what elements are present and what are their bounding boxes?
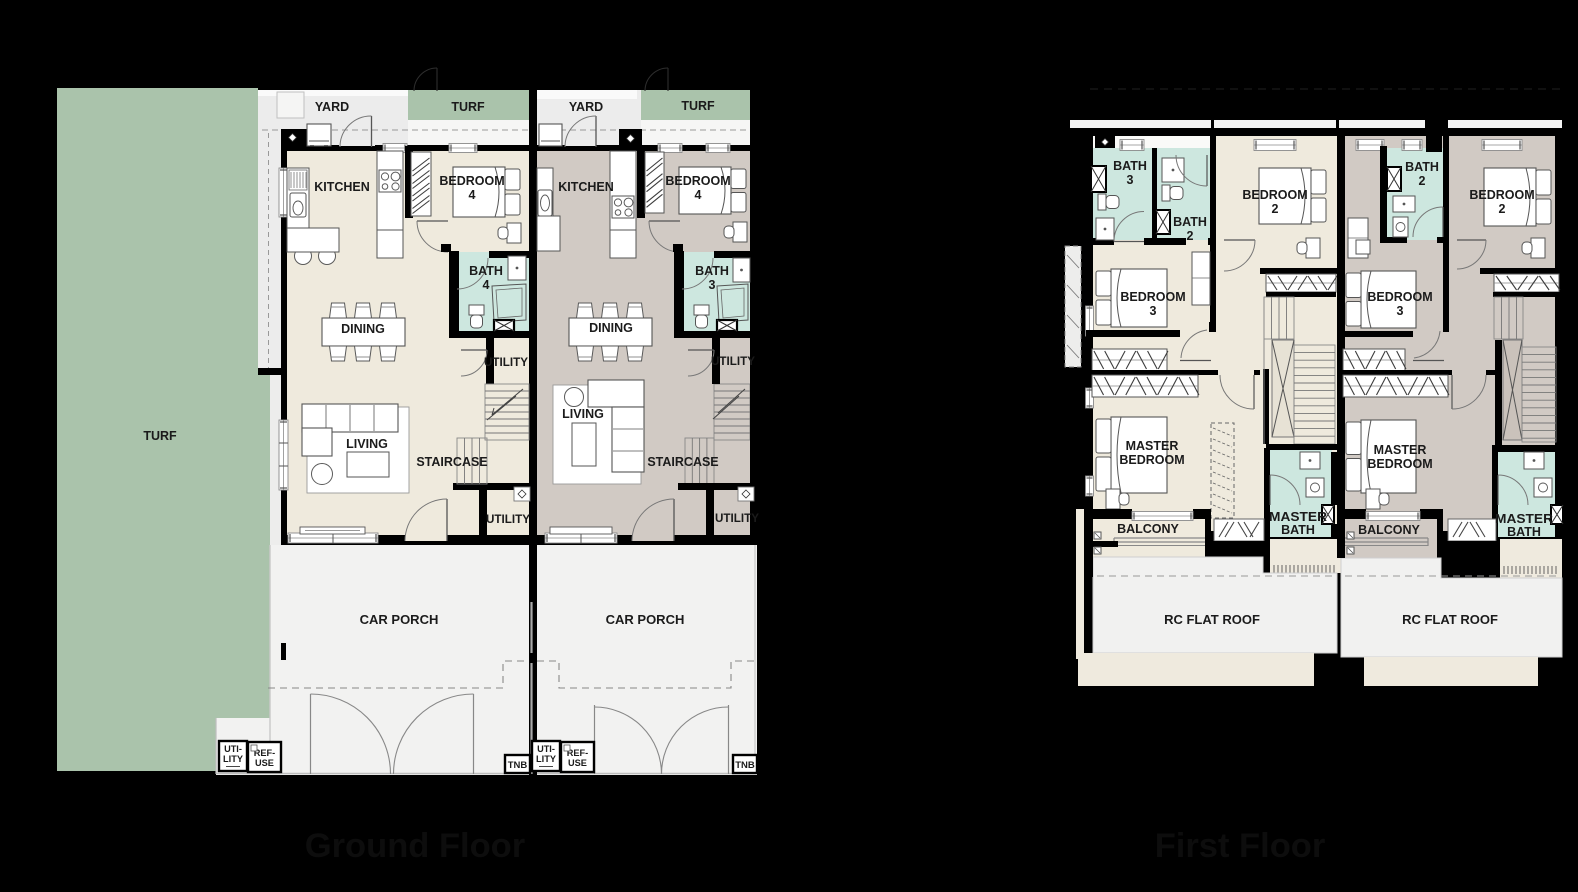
svg-text:BEDROOM: BEDROOM bbox=[1242, 188, 1307, 202]
svg-text:STAIRCASE: STAIRCASE bbox=[647, 455, 718, 469]
svg-text:TURF: TURF bbox=[451, 100, 485, 114]
svg-text:TNB: TNB bbox=[508, 760, 528, 771]
svg-text:YARD: YARD bbox=[315, 100, 349, 114]
svg-text:UTILITY: UTILITY bbox=[711, 356, 755, 368]
svg-text:3: 3 bbox=[709, 278, 716, 292]
svg-text:BEDROOM: BEDROOM bbox=[1367, 457, 1432, 471]
svg-text:CAR PORCH: CAR PORCH bbox=[606, 612, 685, 627]
svg-text:BEDROOM: BEDROOM bbox=[1120, 290, 1185, 304]
svg-text:BEDROOM: BEDROOM bbox=[665, 174, 730, 188]
svg-text:YARD: YARD bbox=[569, 100, 603, 114]
svg-text:2: 2 bbox=[1419, 174, 1426, 188]
svg-text:BATH: BATH bbox=[695, 264, 729, 278]
svg-text:BATH: BATH bbox=[1281, 523, 1315, 537]
svg-text:UTI-: UTI- bbox=[537, 744, 555, 754]
svg-text:KITCHEN: KITCHEN bbox=[558, 180, 614, 194]
svg-text:3: 3 bbox=[1127, 173, 1134, 187]
svg-text:4: 4 bbox=[483, 278, 490, 292]
svg-text:2: 2 bbox=[1187, 229, 1194, 243]
svg-text:BEDROOM: BEDROOM bbox=[1367, 290, 1432, 304]
svg-text:UTILITY: UTILITY bbox=[484, 357, 528, 369]
svg-text:RC FLAT ROOF: RC FLAT ROOF bbox=[1164, 612, 1260, 627]
svg-text:2: 2 bbox=[1272, 202, 1279, 216]
svg-text:LIVING: LIVING bbox=[346, 437, 388, 451]
svg-text:LITY: LITY bbox=[223, 754, 243, 764]
svg-text:KITCHEN: KITCHEN bbox=[314, 180, 370, 194]
svg-text:RC FLAT ROOF: RC FLAT ROOF bbox=[1402, 612, 1498, 627]
svg-text:BALCONY: BALCONY bbox=[1117, 522, 1179, 536]
svg-text:MASTER: MASTER bbox=[1374, 443, 1427, 457]
svg-text:BATH: BATH bbox=[1507, 525, 1541, 539]
svg-text:STAIRCASE: STAIRCASE bbox=[416, 455, 487, 469]
svg-text:UTI-: UTI- bbox=[224, 744, 242, 754]
svg-text:USE: USE bbox=[568, 758, 587, 768]
svg-text:MASTER: MASTER bbox=[1269, 510, 1327, 524]
svg-text:2: 2 bbox=[1499, 202, 1506, 216]
svg-text:MASTER: MASTER bbox=[1126, 439, 1179, 453]
svg-text:DINING: DINING bbox=[589, 321, 633, 335]
svg-text:BATH: BATH bbox=[1113, 159, 1147, 173]
svg-text:USE: USE bbox=[255, 758, 274, 768]
svg-text:LITY: LITY bbox=[536, 754, 556, 764]
svg-text:UTILITY: UTILITY bbox=[715, 513, 759, 525]
svg-text:3: 3 bbox=[1150, 304, 1157, 318]
svg-text:3: 3 bbox=[1397, 304, 1404, 318]
svg-text:4: 4 bbox=[469, 188, 476, 202]
svg-text:TNB: TNB bbox=[735, 760, 755, 771]
svg-text:TURF: TURF bbox=[143, 429, 177, 443]
svg-text:TURF: TURF bbox=[681, 99, 715, 113]
svg-text:DINING: DINING bbox=[341, 322, 385, 336]
svg-text:BEDROOM: BEDROOM bbox=[1469, 188, 1534, 202]
svg-text:BEDROOM: BEDROOM bbox=[1119, 453, 1184, 467]
svg-text:MASTER: MASTER bbox=[1495, 512, 1553, 526]
svg-text:4: 4 bbox=[695, 188, 702, 202]
svg-text:BATH: BATH bbox=[469, 264, 503, 278]
svg-text:BEDROOM: BEDROOM bbox=[439, 174, 504, 188]
svg-text:BATH: BATH bbox=[1405, 160, 1439, 174]
svg-text:CAR PORCH: CAR PORCH bbox=[360, 612, 439, 627]
svg-text:UTILITY: UTILITY bbox=[486, 514, 530, 526]
svg-text:First Floor: First Floor bbox=[1155, 827, 1326, 865]
svg-text:BATH: BATH bbox=[1173, 215, 1207, 229]
svg-text:LIVING: LIVING bbox=[562, 407, 604, 421]
svg-text:Ground Floor: Ground Floor bbox=[305, 827, 525, 865]
svg-text:BALCONY: BALCONY bbox=[1358, 523, 1420, 537]
